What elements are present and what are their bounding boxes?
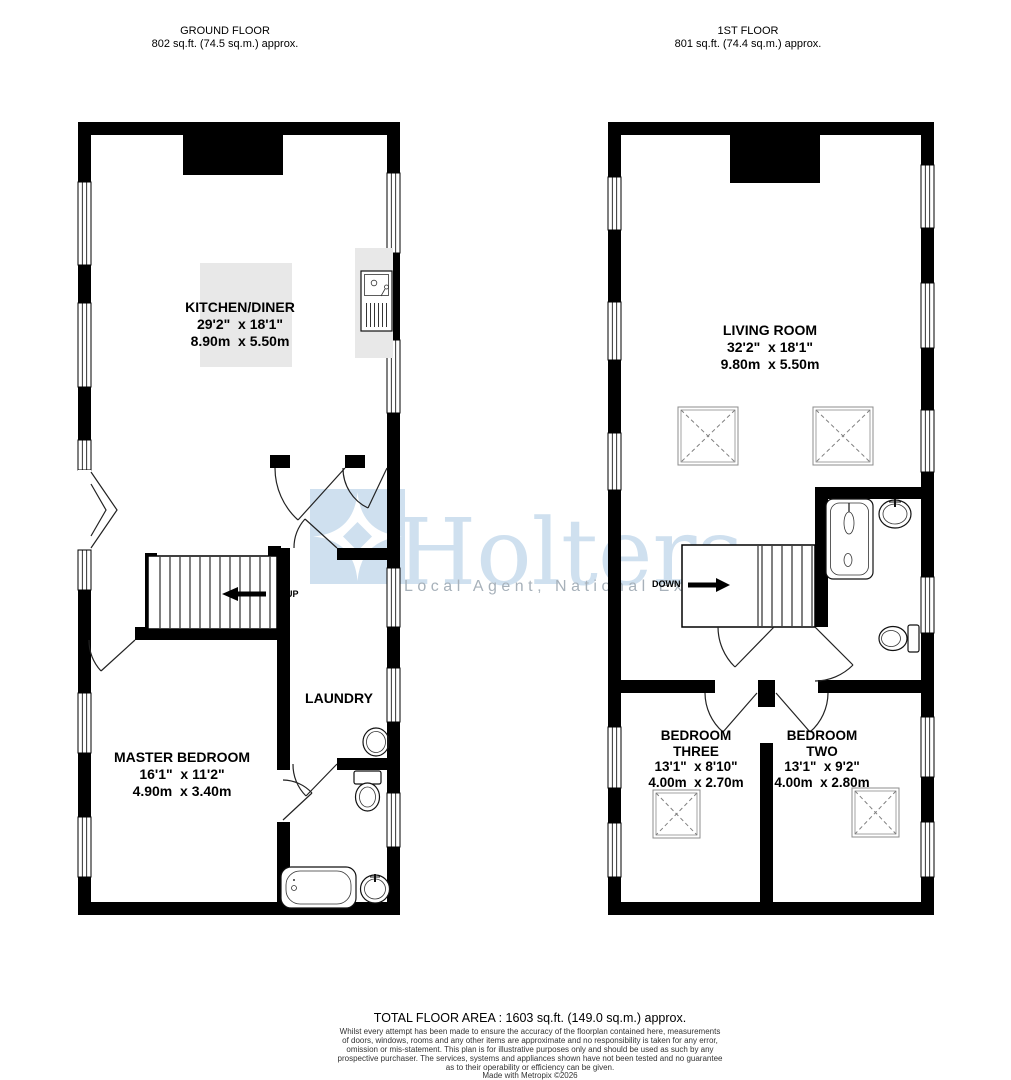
door	[89, 640, 135, 671]
disclaimer-text: Whilst every attempt has been made to en…	[338, 1027, 723, 1072]
room-name: BEDROOM TWO	[774, 728, 869, 759]
door	[815, 627, 853, 681]
window	[921, 822, 934, 877]
window	[78, 817, 91, 877]
floorplan-canvas: Holters Local Agent, National Exposure	[0, 0, 1011, 1080]
up-label: UP	[286, 589, 299, 599]
living-room-label: LIVING ROOM 32'2" x 18'1" 9.80m x 5.50m	[721, 322, 820, 373]
stairs-down	[682, 545, 815, 627]
door	[283, 780, 312, 820]
bath-tub	[281, 867, 356, 908]
room-name: LAUNDRY	[305, 690, 373, 707]
first-floor-area: 801 sq.ft. (74.4 sq.m.) approx.	[675, 38, 822, 51]
down-label: DOWN	[652, 579, 681, 589]
window	[608, 727, 621, 788]
room-dims-metric: 4.00m x 2.80m	[774, 775, 869, 791]
ground-floor-title: GROUND FLOOR	[152, 25, 299, 38]
first-floor-header: 1ST FLOOR 801 sq.ft. (74.4 sq.m.) approx…	[675, 25, 822, 51]
kitchen-label: KITCHEN/DINER 29'2" x 18'1" 8.90m x 5.50…	[185, 299, 295, 350]
stairs-up	[148, 556, 277, 629]
door	[776, 693, 828, 732]
first-floor-doors	[705, 627, 853, 732]
laundry-basin	[363, 728, 389, 756]
window	[921, 283, 934, 348]
laundry-label: LAUNDRY	[305, 690, 373, 707]
room-dims-metric: 4.00m x 2.70m	[648, 775, 743, 791]
room-dims-imperial: 32'2" x 18'1"	[721, 339, 820, 356]
room-dims-imperial: 29'2" x 18'1"	[185, 316, 295, 333]
room-name: KITCHEN/DINER	[185, 299, 295, 316]
room-dims-metric: 4.90m x 3.40m	[114, 783, 250, 800]
first-floor-title: 1ST FLOOR	[675, 25, 822, 38]
window	[78, 550, 91, 590]
room-dims-metric: 9.80m x 5.50m	[721, 356, 820, 373]
window	[921, 717, 934, 777]
wash-basin	[361, 874, 390, 903]
room-name: BEDROOM THREE	[648, 728, 743, 759]
skylight	[678, 407, 738, 465]
window	[78, 303, 91, 387]
window	[608, 302, 621, 360]
toilet	[879, 625, 919, 652]
door	[718, 627, 774, 667]
door	[293, 764, 337, 796]
room-dims-metric: 8.90m x 5.50m	[185, 333, 295, 350]
room-dims-imperial: 13'1" x 8'10"	[648, 759, 743, 775]
shower-bath	[826, 499, 873, 579]
room-dims-imperial: 16'1" x 11'2"	[114, 766, 250, 783]
ground-floor-area: 802 sq.ft. (74.5 sq.m.) approx.	[152, 38, 299, 51]
skylight	[813, 407, 873, 465]
wash-basin	[879, 499, 911, 528]
toilet	[354, 771, 381, 811]
kitchen-sink	[361, 271, 392, 331]
bedroom-two-label: BEDROOM TWO 13'1" x 9'2" 4.00m x 2.80m	[774, 728, 869, 790]
window	[608, 177, 621, 230]
window	[78, 693, 91, 753]
room-name: LIVING ROOM	[721, 322, 820, 339]
skylight	[852, 788, 899, 837]
chimney-breast	[730, 122, 820, 183]
french-door-opening	[78, 470, 117, 550]
window	[921, 165, 934, 228]
room-dims-imperial: 13'1" x 9'2"	[774, 759, 869, 775]
window	[921, 577, 934, 633]
window	[608, 433, 621, 490]
window	[387, 173, 400, 253]
window	[78, 182, 91, 265]
bedroom-three-label: BEDROOM THREE 13'1" x 8'10" 4.00m x 2.70…	[648, 728, 743, 790]
window	[387, 668, 400, 722]
room-name: MASTER BEDROOM	[114, 749, 250, 766]
ground-floor-header: GROUND FLOOR 802 sq.ft. (74.5 sq.m.) app…	[152, 25, 299, 51]
total-floor-area: TOTAL FLOOR AREA : 1603 sq.ft. (149.0 sq…	[374, 1011, 686, 1025]
chimney-breast	[183, 122, 283, 175]
window	[608, 823, 621, 877]
master-bedroom-label: MASTER BEDROOM 16'1" x 11'2" 4.90m x 3.4…	[114, 749, 250, 800]
window	[921, 410, 934, 472]
window	[78, 440, 91, 470]
window	[387, 568, 400, 627]
credit-text: Made with Metropix ©2026	[482, 1071, 577, 1080]
window	[387, 793, 400, 847]
door	[705, 693, 757, 732]
skylight	[653, 790, 700, 838]
